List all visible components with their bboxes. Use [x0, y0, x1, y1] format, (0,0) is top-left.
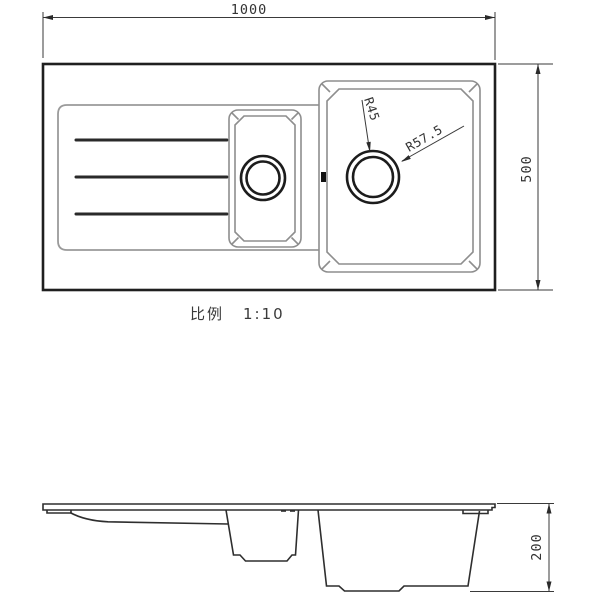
side-view: 200: [43, 504, 554, 592]
drainboard-slope-profile: [70, 513, 228, 525]
dimension-depth: 200: [470, 504, 554, 592]
large-bowl-profile: [318, 510, 480, 591]
drainboard-grooves: [76, 140, 227, 214]
arrowhead-down-icon: [547, 582, 552, 592]
dimension-height-label: 500: [519, 155, 535, 182]
sink-cad-drawing: 1000: [0, 0, 600, 600]
dimension-depth-label: 200: [529, 533, 545, 560]
scale-value: 1:10: [243, 305, 285, 323]
scale-note: 比例 1:10: [190, 305, 285, 323]
scale-label: 比例: [190, 305, 224, 323]
arrowhead-up-icon: [536, 64, 541, 74]
large-bowl: [319, 81, 480, 272]
technical-drawing-sheet: 1000: [0, 0, 600, 600]
overflow-hole-mark: [321, 172, 326, 182]
rim-profile: [43, 504, 495, 510]
arrowhead-left-icon: [43, 15, 53, 20]
dimension-width: 1000: [43, 2, 495, 60]
top-view: 1000: [43, 2, 553, 290]
arrowhead-down-icon: [536, 280, 541, 290]
small-bowl: [229, 110, 301, 247]
rim-joint-mark: [290, 510, 295, 512]
arrowhead-up-icon: [547, 504, 552, 514]
dimension-width-label: 1000: [231, 2, 268, 18]
small-bowl-profile: [226, 510, 299, 561]
arrowhead-right-icon: [485, 15, 495, 20]
dimension-height: 500: [498, 64, 553, 290]
rim-joint-mark: [281, 510, 286, 512]
